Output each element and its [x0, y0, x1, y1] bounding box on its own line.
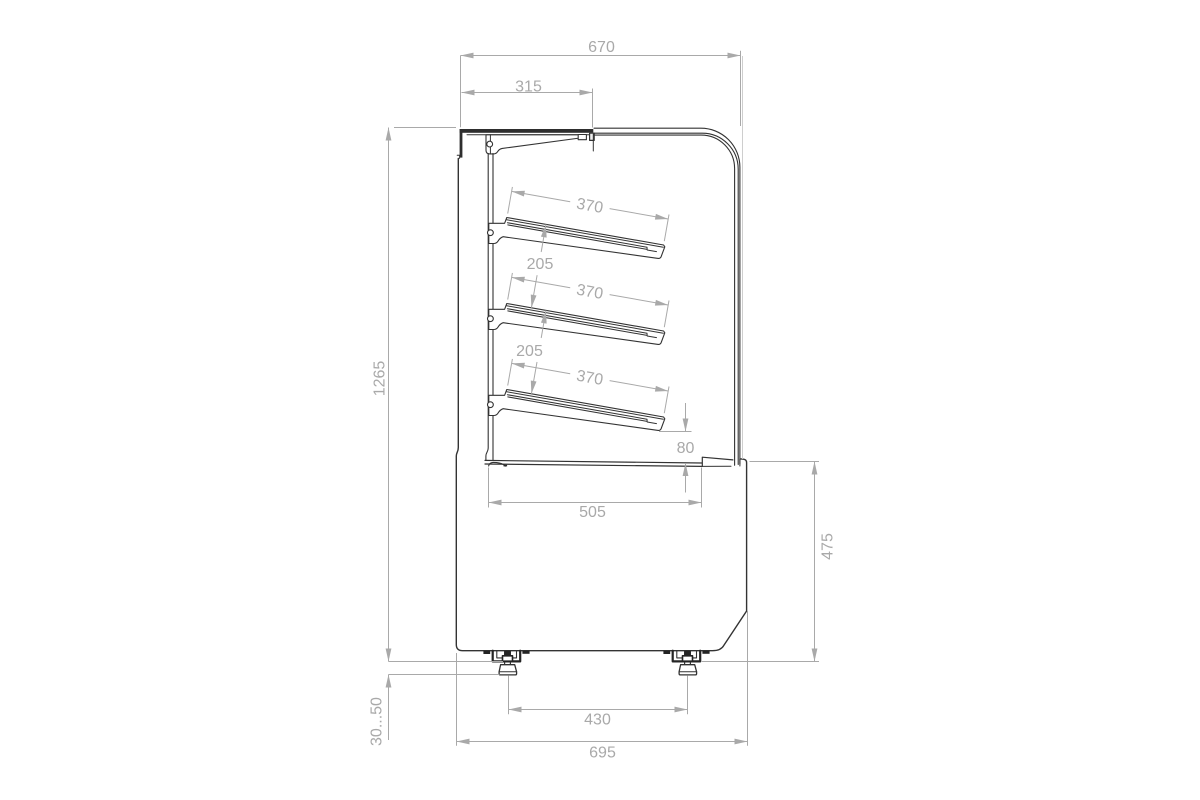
svg-text:695: 695 [589, 745, 616, 762]
svg-text:370: 370 [575, 368, 604, 389]
svg-text:505: 505 [579, 504, 606, 521]
svg-text:1265: 1265 [371, 361, 388, 397]
svg-text:315: 315 [515, 78, 542, 95]
svg-text:370: 370 [575, 196, 604, 217]
svg-text:30...50: 30...50 [369, 697, 386, 746]
svg-text:80: 80 [677, 440, 695, 457]
svg-text:475: 475 [820, 533, 837, 560]
svg-text:670: 670 [588, 39, 615, 56]
svg-text:205: 205 [527, 256, 554, 273]
svg-text:370: 370 [575, 282, 604, 303]
svg-text:430: 430 [584, 712, 611, 729]
svg-text:205: 205 [516, 343, 543, 360]
